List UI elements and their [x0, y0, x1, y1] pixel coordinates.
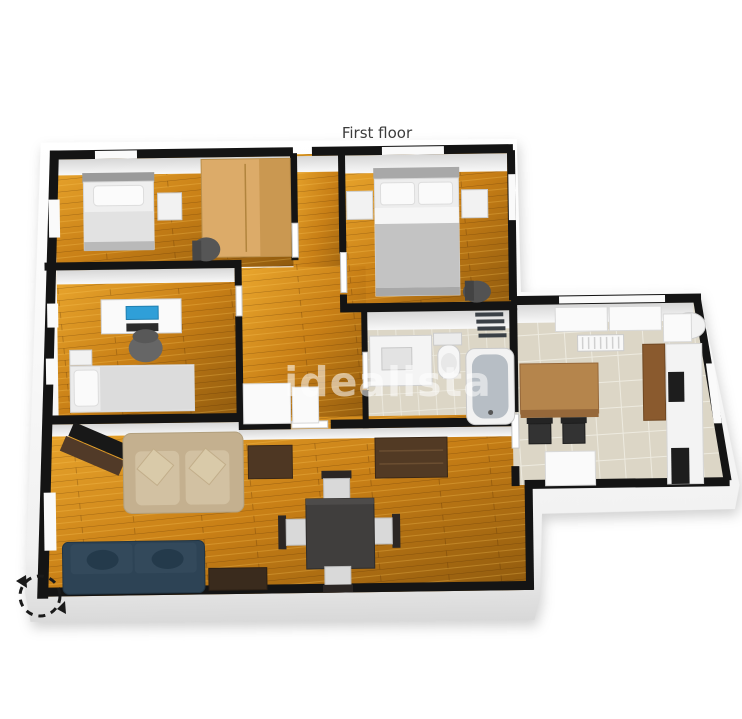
office-chair — [128, 329, 162, 362]
dining-chair-right — [372, 514, 400, 548]
oven — [668, 372, 684, 402]
door-bedroom1 — [292, 223, 298, 257]
kitchen-chair-1 — [527, 418, 553, 444]
window-top-master — [382, 146, 444, 155]
window-top-bedroom1 — [95, 150, 137, 159]
beige-sofa — [123, 432, 244, 514]
window-left-bedroom1 — [49, 199, 61, 237]
floor-plan-page: First floor idealista — [0, 0, 742, 719]
dining-chair-top — [321, 470, 351, 500]
appliance — [671, 448, 690, 484]
office-single-bed — [70, 365, 195, 413]
wardrobe-side — [259, 158, 291, 256]
monitor — [126, 306, 158, 319]
office-nightstand — [70, 350, 92, 365]
window-panel-1 — [555, 307, 607, 332]
side-cabinet — [248, 445, 292, 479]
window-left-office-1 — [47, 303, 58, 327]
navy-sofa — [62, 540, 205, 594]
dining-table-edge — [306, 498, 374, 505]
page-title: First floor — [342, 124, 413, 142]
window-left-office-2 — [46, 359, 57, 385]
window-left-living — [44, 493, 57, 551]
window-top-kitchen — [559, 295, 665, 303]
floor-plan-render: First floor idealista — [0, 0, 742, 719]
kitchen-table-edge — [521, 409, 599, 418]
fridge-top — [663, 314, 691, 342]
door-office — [236, 286, 242, 316]
dining-chair-bottom — [323, 566, 353, 592]
tall-cabinet — [643, 344, 666, 420]
radiator — [578, 335, 624, 352]
kitchen-table — [520, 363, 599, 414]
nightstand-left — [347, 191, 373, 219]
coffee-table — [209, 568, 267, 591]
single-bed — [82, 172, 155, 251]
double-bed — [373, 167, 461, 296]
kitchen-chair-2 — [561, 417, 587, 443]
door-master — [340, 252, 347, 292]
nightstand — [158, 193, 182, 220]
window-panel-2 — [609, 306, 661, 331]
island-unit — [545, 451, 595, 486]
window-right-master — [508, 174, 516, 220]
dining-table — [306, 498, 375, 569]
dining-chair-left — [278, 515, 306, 549]
nightstand-right — [461, 189, 487, 217]
watermark: idealista — [284, 358, 492, 406]
sideboard — [375, 437, 448, 478]
